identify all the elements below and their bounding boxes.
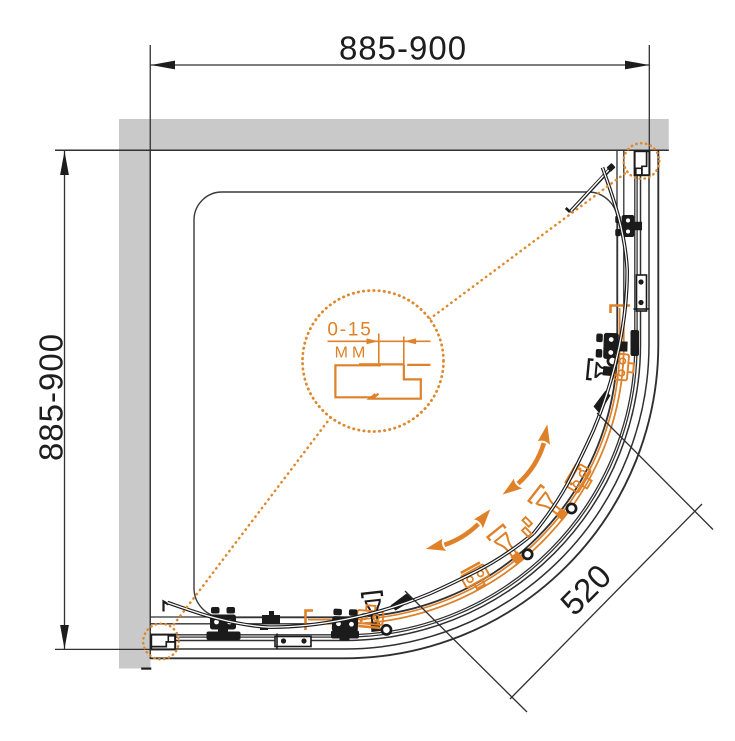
svg-text:885-900: 885-900 xyxy=(339,30,467,67)
svg-text:0-15: 0-15 xyxy=(327,320,372,341)
svg-text:885-900: 885-900 xyxy=(33,333,70,461)
svg-text:ММ: ММ xyxy=(335,345,370,362)
